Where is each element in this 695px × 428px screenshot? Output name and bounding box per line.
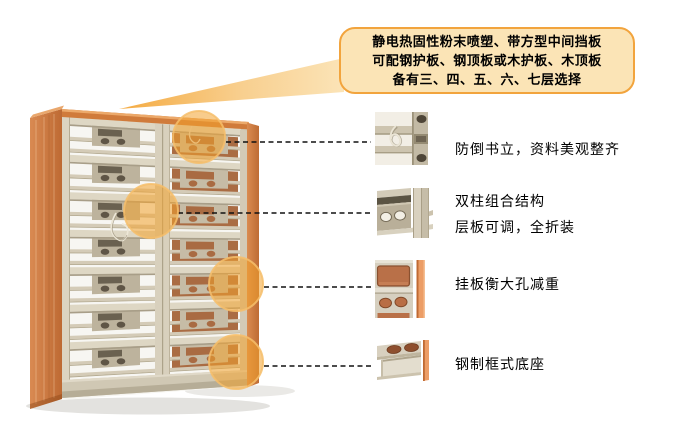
highlight-circle-hanging-plate bbox=[209, 257, 263, 311]
annotation-double-column: 双柱组合结构 层板可调，全折装 bbox=[455, 190, 575, 242]
detail-image-book-support bbox=[375, 112, 428, 165]
annotation-line: 双柱组合结构 bbox=[455, 190, 575, 216]
callout-line: 备有三、四、五、六、七层选择 bbox=[392, 70, 581, 89]
detail-image-steel-base bbox=[375, 338, 432, 382]
product-diagram: 静电热固性粉末喷塑、带方型中间挡板 可配钢护板、钢顶板或木护板、木顶板 备有三、… bbox=[0, 0, 695, 428]
annotation-line: 挂板衡大孔减重 bbox=[455, 273, 560, 299]
annotation-line: 层板可调，全折装 bbox=[455, 216, 575, 242]
callout-line: 可配钢护板、钢顶板或木护板、木顶板 bbox=[372, 51, 602, 70]
detail-image-hanging-plate bbox=[375, 260, 425, 318]
detail-image-double-column bbox=[377, 188, 433, 238]
annotation-steel-base: 钢制框式底座 bbox=[455, 353, 545, 379]
annotation-line: 防倒书立，资料美观整齐 bbox=[455, 138, 620, 164]
highlight-circle-book-support bbox=[173, 111, 225, 163]
left-wood-panel bbox=[30, 106, 64, 410]
highlight-circle-steel-base bbox=[209, 335, 263, 389]
callout-line: 静电热固性粉末喷塑、带方型中间挡板 bbox=[372, 32, 602, 51]
annotation-book-support: 防倒书立，资料美观整齐 bbox=[455, 138, 620, 164]
callout-bubble: 静电热固性粉末喷塑、带方型中间挡板 可配钢护板、钢顶板或木护板、木顶板 备有三、… bbox=[339, 27, 635, 94]
callout-tail bbox=[119, 58, 344, 109]
highlight-circle-double-column bbox=[124, 184, 178, 238]
annotation-hanging-plate: 挂板衡大孔减重 bbox=[455, 273, 560, 299]
annotation-line: 钢制框式底座 bbox=[455, 353, 545, 379]
